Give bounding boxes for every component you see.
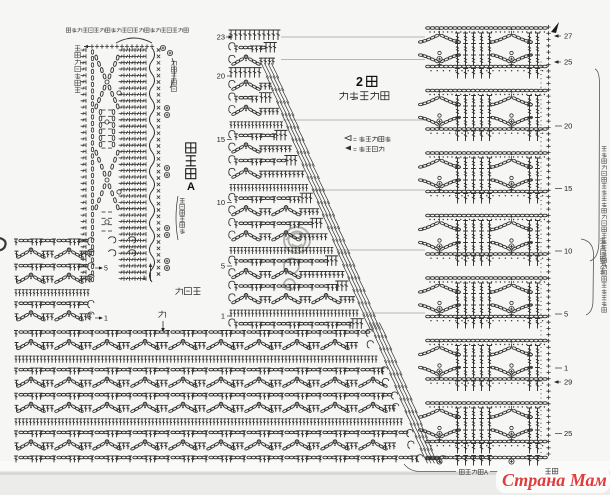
svg-text:10: 10	[564, 247, 572, 256]
svg-text:A: A	[187, 181, 195, 193]
svg-text:5: 5	[104, 266, 108, 273]
svg-text:A: A	[484, 471, 488, 477]
svg-text:15: 15	[217, 135, 225, 144]
svg-text:23: 23	[217, 33, 225, 42]
svg-text:=: =	[353, 137, 357, 144]
svg-text:29: 29	[564, 378, 572, 387]
svg-text:5: 5	[221, 262, 225, 271]
svg-text:25: 25	[564, 429, 572, 438]
svg-text:10: 10	[217, 198, 225, 207]
svg-text:5: 5	[564, 310, 568, 319]
svg-text:20: 20	[564, 122, 572, 131]
svg-text:=: =	[353, 147, 357, 154]
svg-text:1: 1	[564, 364, 568, 373]
svg-text:2: 2	[356, 75, 363, 89]
svg-text:Страна Мам: Страна Мам	[502, 470, 607, 490]
svg-text:25: 25	[564, 58, 572, 67]
svg-text:15: 15	[564, 184, 572, 193]
svg-text:27: 27	[564, 32, 572, 41]
svg-text:1: 1	[104, 316, 108, 323]
svg-text:1: 1	[142, 275, 146, 282]
svg-text:1: 1	[221, 312, 225, 321]
svg-text:20: 20	[217, 72, 225, 81]
